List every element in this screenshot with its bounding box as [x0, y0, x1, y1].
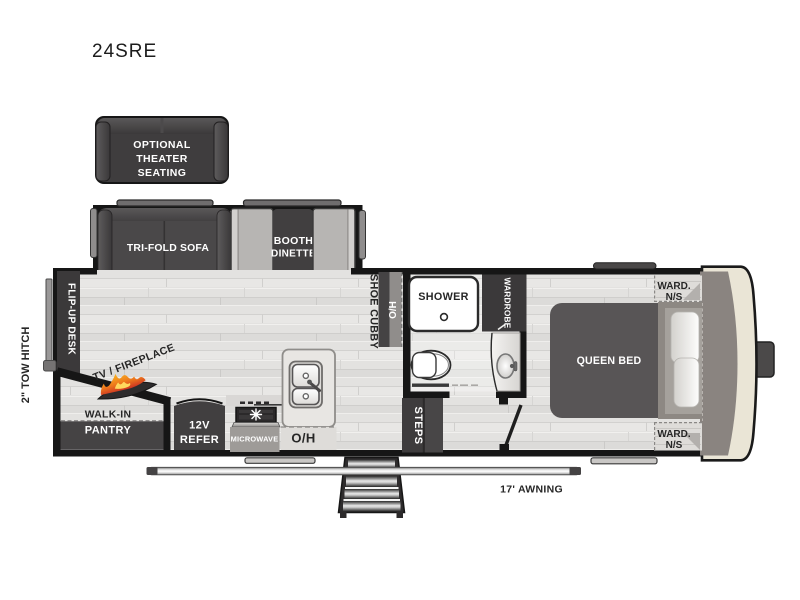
- svg-text:O/H: O/H: [291, 431, 315, 446]
- svg-text:PANTRY: PANTRY: [85, 425, 132, 437]
- svg-text:DINETTE: DINETTE: [271, 249, 316, 260]
- svg-text:BOOTH: BOOTH: [274, 235, 313, 247]
- svg-text:STEPS: STEPS: [412, 406, 424, 444]
- svg-text:O/H: O/H: [388, 301, 399, 319]
- svg-text:SEATING: SEATING: [138, 167, 187, 179]
- svg-text:QUEEN BED: QUEEN BED: [577, 355, 642, 367]
- svg-text:WARD.: WARD.: [657, 281, 691, 292]
- svg-text:WARD.: WARD.: [657, 429, 691, 440]
- svg-text:TRI-FOLD SOFA: TRI-FOLD SOFA: [127, 243, 210, 254]
- svg-text:MICROWAVE: MICROWAVE: [231, 435, 279, 444]
- svg-text:N/S: N/S: [666, 440, 683, 451]
- svg-text:SHOWER: SHOWER: [418, 291, 468, 303]
- svg-text:REFER: REFER: [180, 434, 219, 446]
- svg-text:OPTIONAL: OPTIONAL: [133, 139, 191, 151]
- svg-text:WALK-IN: WALK-IN: [85, 410, 132, 421]
- svg-text:SHOE CUBBY: SHOE CUBBY: [368, 274, 380, 349]
- svg-text:N/S: N/S: [666, 292, 683, 303]
- svg-text:2" TOW HITCH: 2" TOW HITCH: [20, 327, 32, 404]
- svg-text:THEATER: THEATER: [136, 153, 188, 165]
- svg-text:12V: 12V: [189, 420, 210, 432]
- svg-text:24SRE: 24SRE: [92, 41, 157, 62]
- svg-text:17' AWNING: 17' AWNING: [500, 484, 563, 496]
- svg-text:FLIP-UP DESK: FLIP-UP DESK: [66, 283, 77, 356]
- svg-text:WARDROBE: WARDROBE: [503, 278, 513, 329]
